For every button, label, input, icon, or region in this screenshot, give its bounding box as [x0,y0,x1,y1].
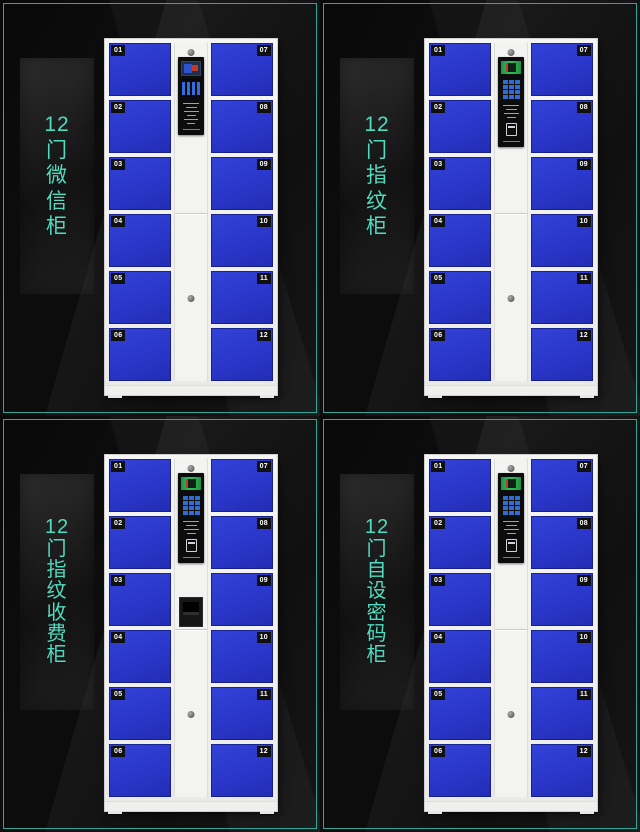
locker-door-column-left: 010203040506 [109,43,171,381]
product-label-panel: 12门自设密码柜 [340,474,414,710]
qr-bar [192,82,195,95]
door-number-badge: 07 [257,461,271,472]
locker-door: 11 [211,687,273,740]
text-line [503,521,519,522]
keypad-key [509,80,514,84]
product-label-text: 12 [45,517,69,538]
locker-door: 03 [429,573,491,626]
qr-bar [187,82,190,95]
locker-door: 07 [211,459,273,512]
keypad-key [189,511,194,515]
locker-door: 03 [109,157,171,210]
door-number-badge: 09 [257,575,271,586]
product-label-text: 信 [46,189,68,215]
door-number-badge: 11 [257,273,271,284]
text-line [504,113,519,114]
keypad-key [509,85,514,89]
locker-door: 09 [211,573,273,626]
locker-door: 09 [531,573,593,626]
door-number-badge: 12 [577,330,591,341]
locker-door-column-right: 070809101112 [211,459,273,797]
door-number-badge: 03 [431,575,445,586]
locker-door: 01 [429,459,491,512]
locker-foot-right [580,395,594,398]
door-number-badge: 02 [111,518,125,529]
text-line [506,525,517,526]
locker-cabinet-wechat: 010203040506070809101112 [105,39,277,395]
product-label-text: 12 [364,112,389,138]
product-card-fingerprint: 12门指纹柜010203040506070809101112 [320,0,640,416]
keyhole-top-icon [508,49,515,56]
locker-door-column-right: 070809101112 [211,43,273,381]
card-slot-icon [186,539,197,552]
locker-door-column-left: 010203040506 [429,43,491,381]
number-keypad-icon [503,496,520,515]
product-label-text: 码 [367,624,388,645]
control-panel-fingerprint [178,473,204,563]
keypad-key [503,506,508,510]
locker-door: 04 [109,630,171,683]
locker-foot-right [260,811,274,814]
locker-door: 06 [429,328,491,381]
door-number-badge: 04 [431,216,445,227]
locker-door: 05 [429,271,491,324]
locker-body: 010203040506070809101112 [425,455,597,801]
keypad-key [515,95,520,99]
control-panel-fingerprint [498,57,524,147]
keypad-key [503,501,508,505]
locker-cabinet-fingerprint-pay: 010203040506070809101112 [105,455,277,811]
door-number-badge: 02 [431,102,445,113]
door-number-badge: 09 [577,575,591,586]
locker-door: 07 [531,43,593,96]
locker-door-column-right: 070809101112 [531,43,593,381]
keypad-key [503,90,508,94]
text-line [504,529,519,530]
lcd-screen-content [192,65,198,71]
locker-door: 08 [211,100,273,153]
panel-instruction-text [498,521,524,534]
text-line [187,533,196,534]
scanner-window-icon [501,477,521,490]
locker-door-column-right: 070809101112 [531,459,593,797]
product-label-panel: 12门微信柜 [20,58,94,294]
locker-door: 08 [531,100,593,153]
panel-footer-line [503,141,520,142]
keypad-key [509,95,514,99]
keypad-key [195,511,200,515]
door-number-badge: 04 [431,632,445,643]
door-number-badge: 06 [431,746,445,757]
keypad-key [515,90,520,94]
door-number-badge: 01 [111,461,125,472]
keypad-key [195,501,200,505]
product-label-text: 柜 [47,645,68,666]
product-label-text: 纹 [47,581,68,602]
product-label-text: 门 [366,138,388,164]
text-line [187,123,195,124]
door-number-badge: 09 [577,159,591,170]
door-number-badge: 04 [111,632,125,643]
door-number-badge: 05 [111,689,125,700]
locker-door: 10 [531,214,593,267]
locker-door: 10 [531,630,593,683]
keyhole-top-icon [508,465,515,472]
keyhole-middle-icon [508,295,515,302]
product-label-text: 柜 [366,214,388,240]
product-label-text: 指 [47,560,68,581]
product-label-text: 12 [365,517,389,538]
keypad-key [515,85,520,89]
locker-door: 06 [429,744,491,797]
lcd-screen-content [184,64,192,73]
product-label-text: 指 [366,163,388,189]
locker-door-column-left: 010203040506 [109,459,171,797]
locker-center-column [174,459,208,797]
keypad-key [189,496,194,500]
keypad-key [183,496,188,500]
product-label-panel: 12门指纹收费柜 [20,474,94,710]
coin-acceptor-icon [179,597,203,627]
product-card-password: 12门自设密码柜010203040506070809101112 [320,416,640,832]
locker-cabinet-fingerprint: 010203040506070809101112 [425,39,597,395]
fingerprint-scanner-icon [501,61,521,74]
keypad-key [195,496,200,500]
keypad-key [515,506,520,510]
door-number-badge: 12 [577,746,591,757]
panel-instruction-text [498,105,524,118]
door-number-badge: 10 [577,216,591,227]
locker-door: 05 [109,687,171,740]
keypad-key [503,95,508,99]
door-number-badge: 08 [257,518,271,529]
text-line [503,105,519,106]
keypad-key [515,501,520,505]
keypad-key [189,501,194,505]
keyhole-top-icon [188,465,195,472]
keyhole-top-icon [188,49,195,56]
panel-instruction-text [178,521,204,534]
text-line [184,111,199,112]
center-column-seam [495,629,527,630]
keypad-key [509,496,514,500]
keypad-key [515,511,520,515]
center-column-seam [175,629,207,630]
product-label-text: 密 [367,603,388,624]
product-label-text: 设 [367,581,388,602]
panel-footer-line [183,557,200,558]
product-label-text: 自 [367,560,388,581]
locker-body: 010203040506070809101112 [105,455,277,801]
text-line [183,103,199,104]
text-line [186,525,197,526]
locker-door: 02 [109,516,171,569]
locker-foot-left [428,395,442,398]
door-number-badge: 05 [431,689,445,700]
locker-foot-left [108,811,122,814]
door-number-badge: 10 [257,632,271,643]
text-line [187,115,196,116]
locker-door: 12 [211,744,273,797]
door-number-badge: 05 [111,273,125,284]
product-card-wechat: 12门微信柜010203040506070809101112 [0,0,320,416]
panel-footer-line [503,557,520,558]
door-number-badge: 01 [111,45,125,56]
locker-door: 01 [429,43,491,96]
locker-door: 05 [429,687,491,740]
locker-center-column [494,459,528,797]
door-number-badge: 03 [111,575,125,586]
keypad-key [195,506,200,510]
product-collage: 12门微信柜01020304050607080910111212门指纹柜0102… [0,0,640,832]
locker-door: 06 [109,328,171,381]
door-number-badge: 03 [431,159,445,170]
locker-door: 01 [109,459,171,512]
locker-door: 04 [429,630,491,683]
product-label-text: 收 [47,603,68,624]
locker-center-column [174,43,208,381]
locker-door: 11 [531,687,593,740]
center-column-seam [495,213,527,214]
door-number-badge: 07 [257,45,271,56]
locker-door: 04 [109,214,171,267]
product-label-text: 门 [367,539,388,560]
locker-base [105,385,277,395]
lcd-screen-icon [181,61,201,76]
door-number-badge: 02 [111,102,125,113]
center-column-seam [175,213,207,214]
locker-cabinet-password: 010203040506070809101112 [425,455,597,811]
keypad-key [183,511,188,515]
locker-door-column-left: 010203040506 [429,459,491,797]
product-label-text: 门 [47,539,68,560]
door-number-badge: 05 [431,273,445,284]
locker-base [425,801,597,811]
door-number-badge: 10 [257,216,271,227]
qr-code-display-icon [181,79,201,97]
locker-foot-left [428,811,442,814]
product-label-text: 费 [47,624,68,645]
door-number-badge: 06 [111,330,125,341]
panel-instruction-text [178,103,204,124]
locker-door: 05 [109,271,171,324]
qr-bar [182,82,185,95]
text-line [507,533,516,534]
door-number-badge: 11 [257,689,271,700]
locker-door: 11 [211,271,273,324]
locker-foot-left [108,395,122,398]
door-number-badge: 08 [577,102,591,113]
keypad-key [509,90,514,94]
control-panel-password [498,473,524,563]
text-line [184,529,199,530]
door-number-badge: 06 [431,330,445,341]
text-line [183,521,199,522]
number-keypad-icon [503,80,520,99]
locker-door: 03 [429,157,491,210]
keypad-key [509,506,514,510]
door-number-badge: 03 [111,159,125,170]
locker-door: 10 [211,630,273,683]
door-number-badge: 07 [577,461,591,472]
keypad-key [183,501,188,505]
locker-door: 11 [531,271,593,324]
keypad-key [183,506,188,510]
product-label-text: 柜 [367,645,388,666]
keypad-key [189,506,194,510]
text-line [506,109,517,110]
locker-door: 01 [109,43,171,96]
product-label-text: 微 [46,163,68,189]
keyhole-middle-icon [188,711,195,718]
door-number-badge: 12 [257,330,271,341]
locker-body: 010203040506070809101112 [425,39,597,385]
door-number-badge: 07 [577,45,591,56]
control-panel-wechat [178,57,204,135]
locker-door: 12 [211,328,273,381]
locker-center-column [494,43,528,381]
product-label-panel: 12门指纹柜 [340,58,414,294]
keypad-key [503,80,508,84]
locker-door: 07 [211,43,273,96]
locker-door: 08 [211,516,273,569]
door-number-badge: 12 [257,746,271,757]
product-label-text: 12 [44,112,69,138]
qr-bar [197,82,200,95]
locker-body: 010203040506070809101112 [105,39,277,385]
door-number-badge: 10 [577,632,591,643]
product-card-fingerprint-pay: 12门指纹收费柜010203040506070809101112 [0,416,320,832]
door-number-badge: 01 [431,45,445,56]
number-keypad-icon [183,496,200,515]
locker-door: 10 [211,214,273,267]
text-line [184,119,198,120]
door-number-badge: 06 [111,746,125,757]
locker-door: 08 [531,516,593,569]
card-slot-icon [506,123,517,136]
door-number-badge: 01 [431,461,445,472]
locker-base [425,385,597,395]
locker-door: 09 [211,157,273,210]
locker-base [105,801,277,811]
text-line [186,107,197,108]
door-number-badge: 09 [257,159,271,170]
locker-door: 12 [531,744,593,797]
door-number-badge: 11 [577,689,591,700]
panel-footer-line [183,129,200,130]
keypad-key [515,496,520,500]
keypad-key [509,501,514,505]
locker-door: 06 [109,744,171,797]
locker-door: 02 [109,100,171,153]
product-label-text: 纹 [366,189,388,215]
product-label-text: 柜 [46,214,68,240]
keypad-key [503,511,508,515]
door-number-badge: 08 [257,102,271,113]
locker-door: 03 [109,573,171,626]
locker-door: 04 [429,214,491,267]
keypad-key [515,80,520,84]
keypad-key [509,511,514,515]
locker-door: 02 [429,516,491,569]
door-number-badge: 11 [577,273,591,284]
text-line [507,117,516,118]
locker-foot-right [580,811,594,814]
locker-foot-right [260,395,274,398]
door-number-badge: 08 [577,518,591,529]
locker-door: 07 [531,459,593,512]
locker-door: 09 [531,157,593,210]
locker-door: 12 [531,328,593,381]
keypad-key [503,85,508,89]
door-number-badge: 04 [111,216,125,227]
locker-door: 02 [429,100,491,153]
keyhole-middle-icon [508,711,515,718]
product-label-text: 门 [46,138,68,164]
keyhole-middle-icon [188,295,195,302]
card-slot-icon [506,539,517,552]
keypad-key [503,496,508,500]
fingerprint-scanner-icon [181,477,201,490]
door-number-badge: 02 [431,518,445,529]
